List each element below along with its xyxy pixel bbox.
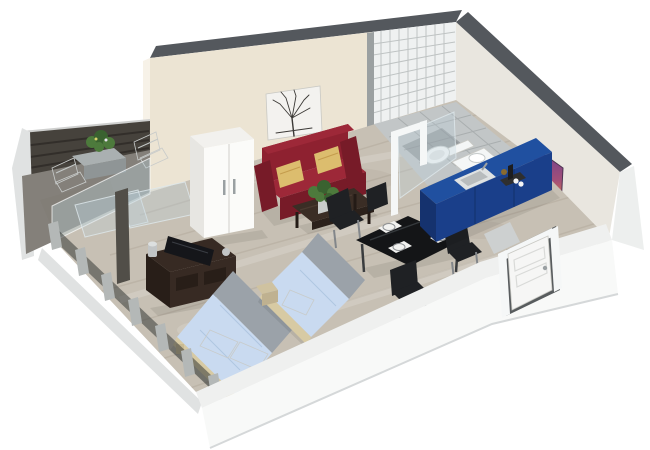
floorplan-render	[0, 0, 650, 450]
speaker-cylinder	[148, 242, 157, 258]
apartment-3d-scene	[0, 0, 650, 450]
shower-frame-left-bar	[391, 130, 398, 216]
wardrobe-side	[190, 136, 204, 238]
wardrobe-handle-right	[233, 179, 236, 194]
wardrobe-handle-left	[223, 180, 226, 195]
door-knob	[543, 266, 547, 270]
tile-wall-edge-strip	[367, 32, 374, 128]
partition-post	[115, 188, 130, 284]
tree-artwork	[266, 86, 322, 140]
shower-frame-right-bar	[420, 120, 427, 166]
dresser-knob	[222, 248, 230, 256]
